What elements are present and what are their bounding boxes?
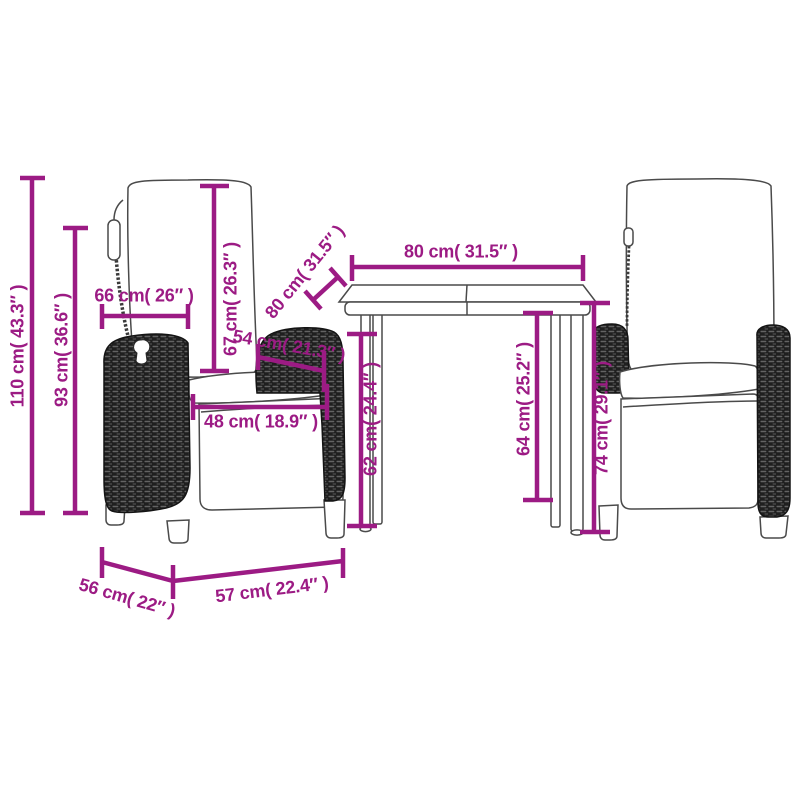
dim-label-74cm: 74 cm( 29.1″ ) — [592, 361, 613, 475]
right-chair-back-cushion — [626, 179, 774, 376]
right-chair-front-right-leg — [760, 516, 788, 538]
left-chair-front-right-leg — [167, 520, 189, 543]
dimension-diagram: 110 cm( 43.3″ ) 93 cm( 36.6″ ) 66 cm( 26… — [0, 0, 800, 800]
table-top-split-line — [466, 285, 467, 302]
left-chair-recline-handle — [108, 220, 120, 260]
left-chair-right-leg — [324, 500, 345, 538]
diagram-artwork — [0, 0, 800, 800]
left-chair-armrest-keyhole-slot — [134, 340, 150, 364]
dim-label-80cm-width: 80 cm( 31.5″ ) — [404, 242, 518, 263]
right-chair-front-left-leg — [599, 505, 618, 540]
dim-label-62cm: 62 cm( 24.4″ ) — [361, 362, 382, 476]
dim-label-93cm: 93 cm( 36.6″ ) — [52, 293, 73, 407]
left-reclining-chair — [104, 180, 345, 543]
right-chair-right-armrest — [757, 325, 790, 517]
dim-label-66cm: 66 cm( 26″ ) — [94, 286, 193, 307]
left-chair-recline-cable — [114, 200, 123, 220]
right-chair-recline-handle — [624, 228, 633, 246]
right-reclining-chair — [594, 179, 790, 540]
right-chair-seat-cushion — [620, 363, 759, 399]
dim-label-110cm: 110 cm( 43.3″ ) — [8, 285, 29, 408]
dim-label-48cm: 48 cm( 18.9″ ) — [204, 412, 318, 433]
right-chair-front-panel — [621, 394, 759, 509]
dim-label-64cm: 64 cm( 25.2″ ) — [514, 342, 535, 456]
